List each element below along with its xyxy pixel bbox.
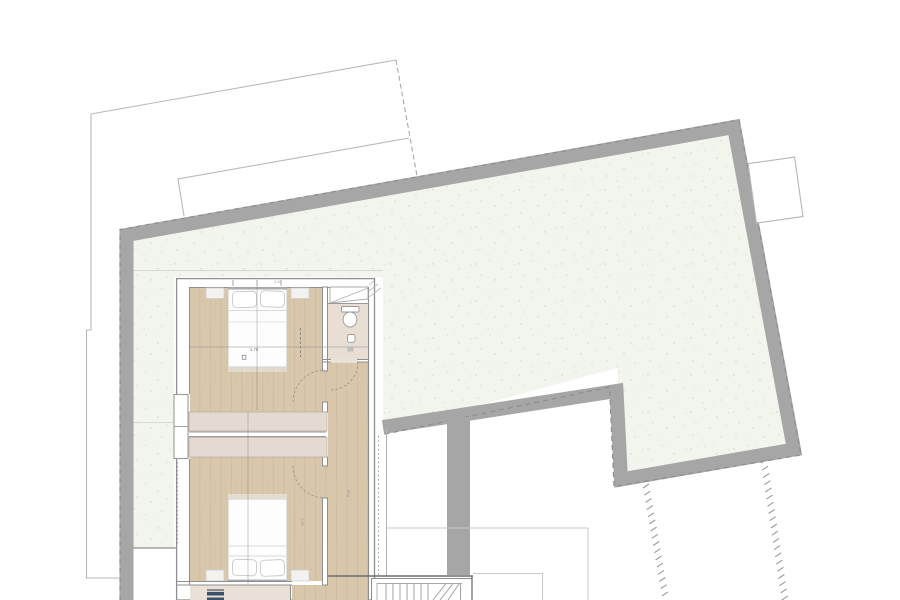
svg-text:Flur: Flur <box>346 490 351 498</box>
svg-text:2.45: 2.45 <box>274 280 281 284</box>
svg-text:1.80: 1.80 <box>300 518 305 527</box>
svg-text:1.78: 1.78 <box>250 347 259 352</box>
